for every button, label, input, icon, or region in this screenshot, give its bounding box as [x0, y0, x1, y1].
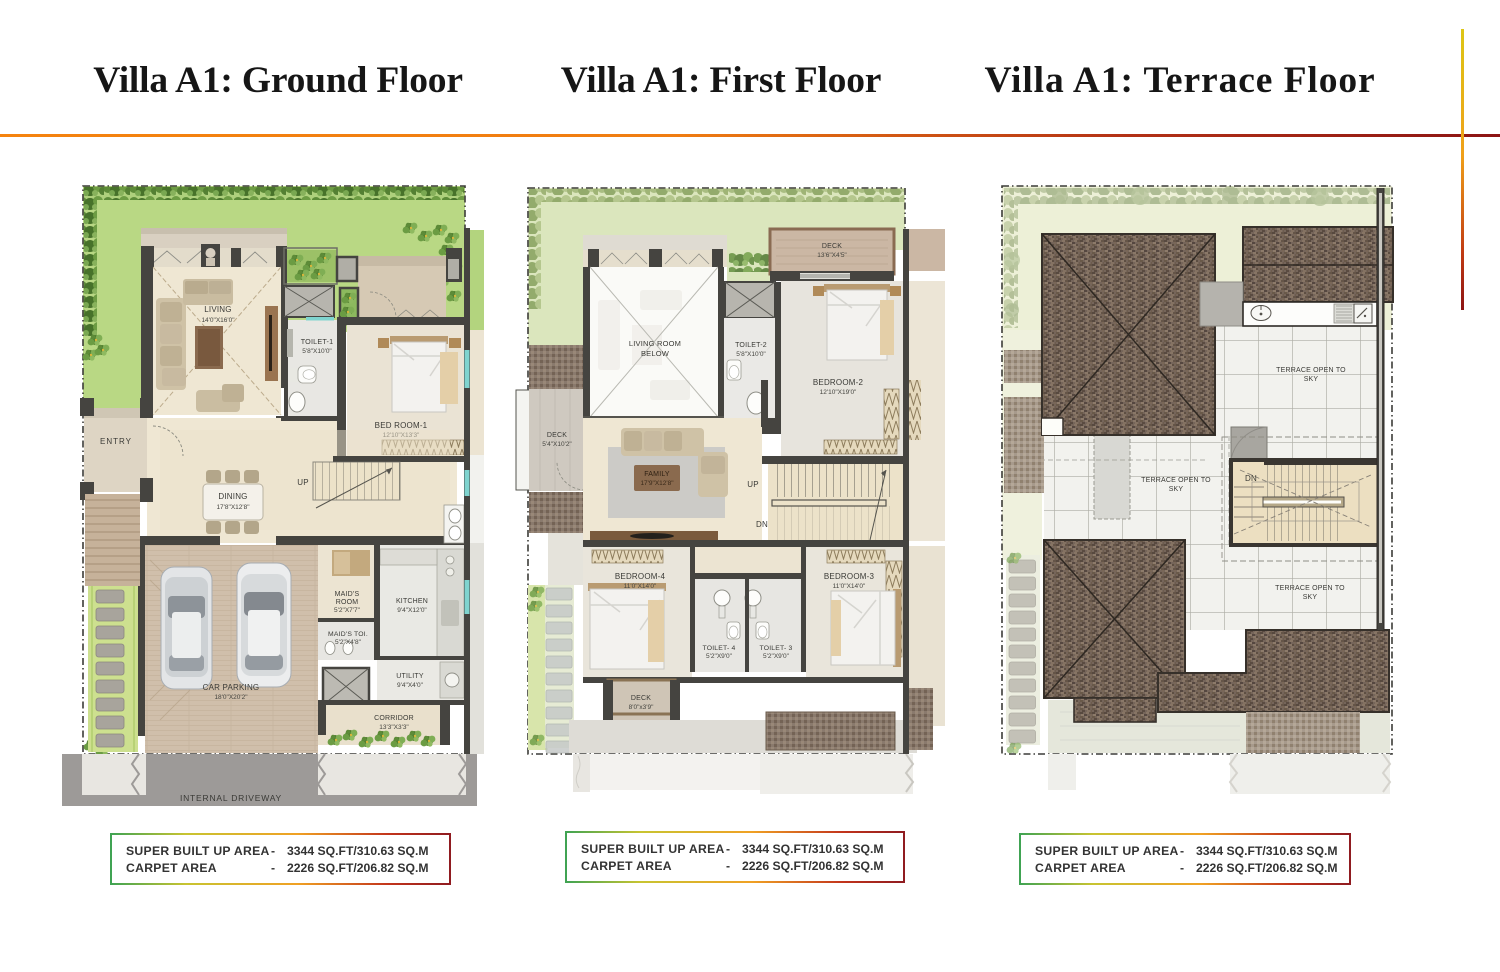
- svg-text:UP: UP: [297, 478, 309, 487]
- svg-text:SKY: SKY: [1169, 486, 1184, 493]
- svg-text:LIVING: LIVING: [204, 305, 231, 314]
- svg-text:TOILET-2: TOILET-2: [735, 342, 767, 349]
- svg-text:UTILITY: UTILITY: [396, 673, 424, 680]
- svg-text:BED ROOM-1: BED ROOM-1: [375, 421, 428, 430]
- svg-text:5'8"X10'0": 5'8"X10'0": [736, 351, 766, 358]
- svg-text:ROOM: ROOM: [336, 599, 359, 606]
- svg-text:SKY: SKY: [1304, 376, 1319, 383]
- svg-text:5'2"X7'7": 5'2"X7'7": [334, 607, 361, 614]
- svg-text:5'2"X9'0": 5'2"X9'0": [763, 653, 790, 660]
- svg-text:13'3"X3'3": 13'3"X3'3": [379, 724, 409, 731]
- svg-text:5'4"X10'2": 5'4"X10'2": [542, 441, 572, 448]
- svg-text:UP: UP: [747, 480, 759, 489]
- svg-text:11'0"X14'0": 11'0"X14'0": [624, 583, 657, 590]
- svg-text:9'4"X12'0": 9'4"X12'0": [397, 607, 427, 614]
- svg-text:11'0"X14'0": 11'0"X14'0": [833, 583, 866, 590]
- svg-text:TOILET- 3: TOILET- 3: [759, 645, 792, 652]
- svg-text:5'2"X9'0": 5'2"X9'0": [706, 653, 733, 660]
- svg-text:CAR PARKING: CAR PARKING: [203, 683, 260, 692]
- svg-text:BEDROOM-3: BEDROOM-3: [824, 572, 875, 581]
- svg-text:SKY: SKY: [1303, 594, 1318, 601]
- svg-text:BELOW: BELOW: [641, 349, 670, 358]
- svg-text:MAID'S TOI.: MAID'S TOI.: [328, 631, 368, 638]
- svg-text:8'0"x3'9": 8'0"x3'9": [629, 704, 654, 711]
- svg-text:TOILET- 4: TOILET- 4: [702, 645, 735, 652]
- svg-text:TERRACE OPEN TO: TERRACE OPEN TO: [1276, 367, 1346, 374]
- svg-text:5'2"X4'8": 5'2"X4'8": [335, 639, 362, 646]
- svg-text:INTERNAL DRIVEWAY: INTERNAL DRIVEWAY: [180, 793, 282, 803]
- svg-text:DN: DN: [756, 520, 768, 529]
- svg-text:MAID'S: MAID'S: [335, 591, 360, 598]
- svg-text:5'8"X10'0": 5'8"X10'0": [302, 348, 332, 355]
- svg-text:14'0"X16'0": 14'0"X16'0": [201, 317, 235, 324]
- svg-text:17'8"X12'8": 17'8"X12'8": [216, 504, 250, 511]
- svg-text:TERRACE OPEN TO: TERRACE OPEN TO: [1141, 477, 1211, 484]
- svg-text:18'0"X20'2": 18'0"X20'2": [214, 694, 248, 701]
- svg-text:TOILET-1: TOILET-1: [301, 337, 334, 346]
- svg-text:BEDROOM-4: BEDROOM-4: [615, 572, 666, 581]
- svg-text:TERRACE OPEN TO: TERRACE OPEN TO: [1275, 585, 1345, 592]
- svg-text:DECK: DECK: [547, 432, 567, 439]
- svg-text:13'6"X4'5": 13'6"X4'5": [817, 252, 847, 259]
- svg-text:FAMILY: FAMILY: [644, 471, 670, 478]
- svg-text:CORRIDOR: CORRIDOR: [374, 715, 414, 722]
- svg-text:BEDROOM-2: BEDROOM-2: [813, 378, 864, 387]
- svg-text:DINING: DINING: [218, 492, 247, 501]
- svg-text:KITCHEN: KITCHEN: [396, 598, 428, 605]
- svg-text:DECK: DECK: [822, 243, 842, 250]
- svg-text:DECK: DECK: [631, 695, 651, 702]
- svg-text:9'4"X4'0": 9'4"X4'0": [397, 682, 424, 689]
- svg-text:LIVING ROOM: LIVING ROOM: [629, 339, 681, 348]
- svg-text:ENTRY: ENTRY: [100, 437, 132, 446]
- svg-text:12'10"X19'0": 12'10"X19'0": [820, 389, 857, 396]
- svg-text:17'9"X12'8": 17'9"X12'8": [640, 480, 674, 487]
- svg-text:DN: DN: [1245, 474, 1257, 483]
